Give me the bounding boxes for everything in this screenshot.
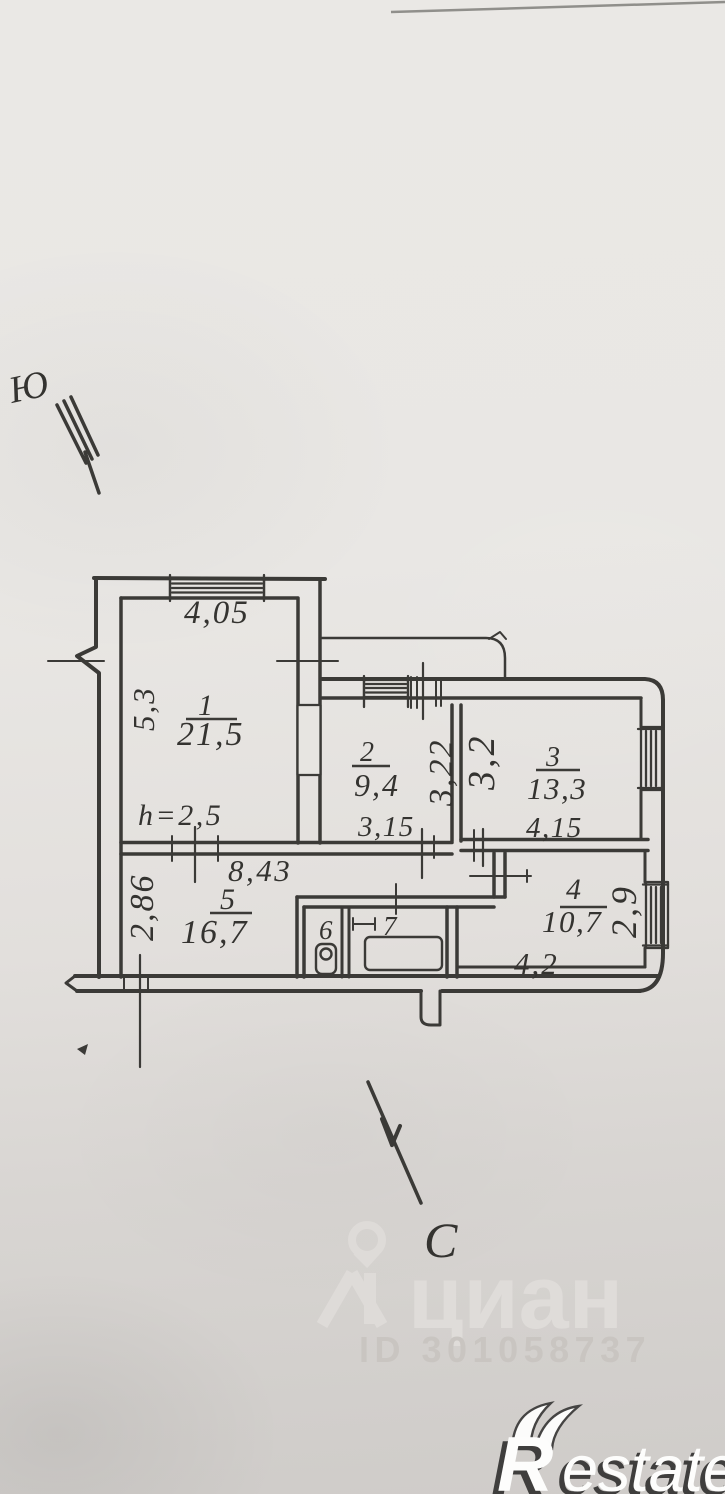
svg-text:4: 4 (566, 873, 581, 906)
svg-text:3,2: 3,2 (461, 734, 503, 792)
svg-text:9,4: 9,4 (354, 767, 400, 803)
svg-text:2,9: 2,9 (604, 884, 644, 938)
svg-text:3,15: 3,15 (357, 811, 415, 843)
svg-text:8,43: 8,43 (228, 853, 292, 888)
svg-text:R: R (497, 1420, 553, 1494)
svg-text:21,5: 21,5 (177, 716, 245, 753)
svg-text:6: 6 (319, 915, 333, 945)
svg-text:10,7: 10,7 (542, 904, 602, 939)
svg-text:2,86: 2,86 (124, 874, 161, 942)
svg-text:5,3: 5,3 (126, 686, 161, 731)
svg-text:4,15: 4,15 (526, 812, 583, 844)
svg-text:7: 7 (383, 911, 398, 941)
svg-text:ID 301058737: ID 301058737 (359, 1329, 651, 1370)
svg-text:4,2: 4,2 (514, 946, 559, 981)
svg-text:Ю: Ю (4, 363, 52, 412)
svg-text:16,7: 16,7 (181, 914, 249, 951)
svg-text:3: 3 (545, 742, 560, 773)
svg-text:4,05: 4,05 (184, 595, 250, 631)
svg-text:2: 2 (360, 737, 374, 768)
svg-text:13,3: 13,3 (527, 771, 587, 806)
svg-text:h=2,5: h=2,5 (138, 799, 223, 832)
svg-text:3,22: 3,22 (423, 739, 460, 808)
svg-text:estate: estate (562, 1432, 725, 1494)
svg-text:5: 5 (220, 883, 235, 916)
